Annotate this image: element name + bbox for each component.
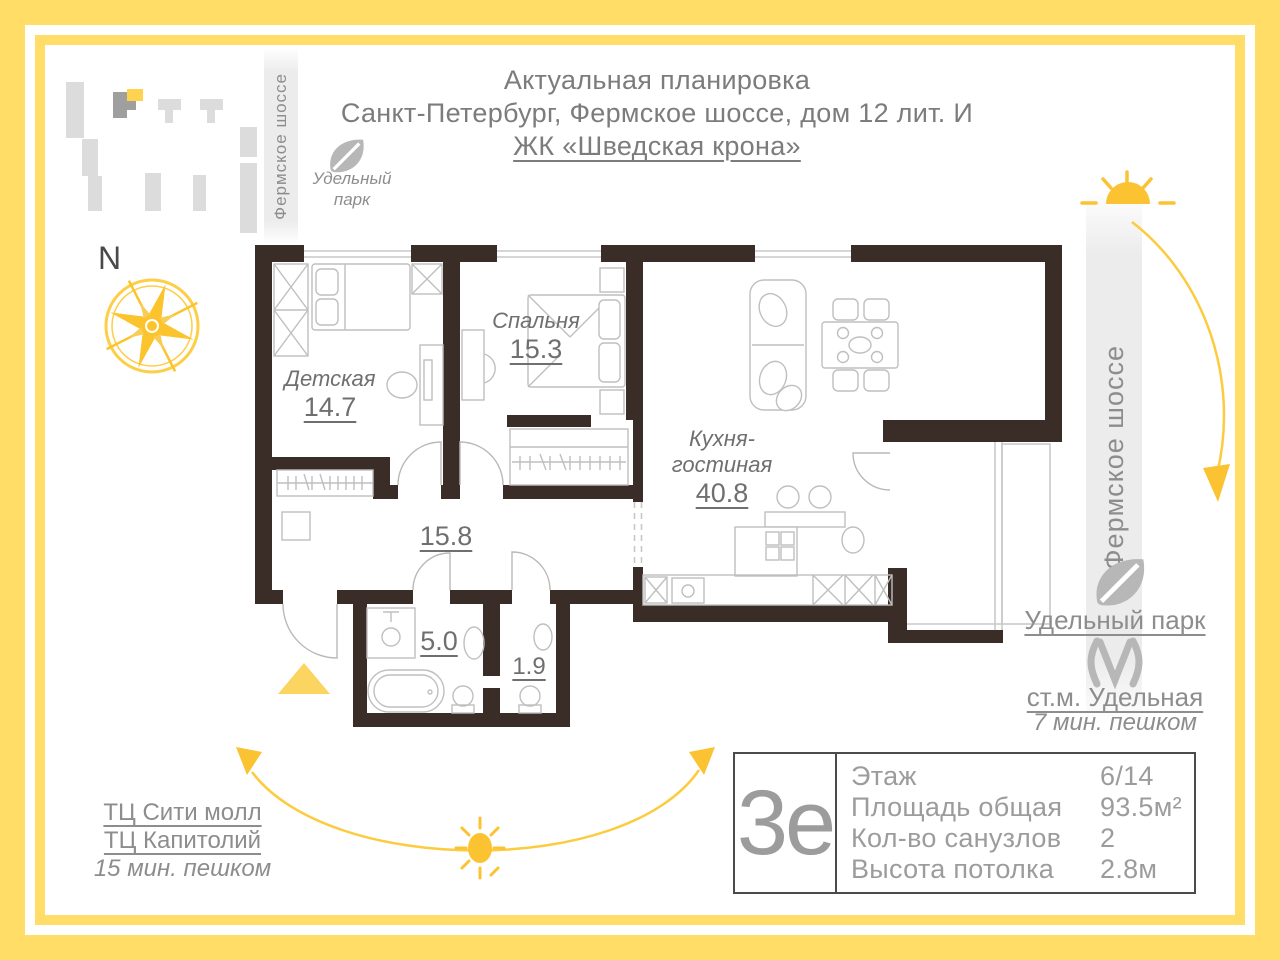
info-value: 2.8м [1100,854,1186,885]
room-name-detskaya: Детская [270,366,390,392]
park-link: Удельный парк [1024,605,1205,635]
site-buildings [66,82,257,233]
park-label-top: Удельный парк [300,168,404,210]
site-building-highlighted [113,89,143,118]
info-label: Площадь общая [851,792,1100,823]
info-value: 2 [1100,823,1186,854]
room-name-spalnya: Спальня [476,308,596,334]
room-area-hall: 15.8 [420,521,473,551]
title-complex-name: ЖК «Шведская крона» [513,130,801,165]
plan-code: 3е [735,754,837,892]
info-row-floor: Этаж 6/14 [851,761,1186,792]
sun-path-south-arrow-right-icon [689,747,715,775]
sun-path-east [1132,222,1224,474]
flyer: Фермское шоссе Фермское шоссе [0,0,1280,960]
room-area-spalnya: 15.3 [510,334,563,364]
title-line2: Санкт-Петербург, Фермское шоссе, дом 12 … [287,97,1027,130]
compass-icon [97,271,208,382]
info-card-rows: Этаж 6/14 Площадь общая 93.5м² Кол-во са… [837,754,1194,892]
room-area-bath: 5.0 [420,626,458,656]
leaf-icon [1096,559,1144,605]
entrance-arrow-icon [278,663,330,694]
mall-walk-time: 15 мин. пешком [85,855,280,883]
info-value: 93.5м² [1100,792,1186,823]
room-area-kitchen: 40.8 [696,478,749,508]
metro-walk-time: 7 мин. пешком [1005,709,1225,737]
info-row-bathrooms: Кол-во санузлов 2 [851,823,1186,854]
info-label: Высота потолка [851,854,1100,885]
info-row-ceiling: Высота потолка 2.8м [851,854,1186,885]
room-area-wc: 1.9 [512,653,545,680]
sun-south-icon [456,818,504,878]
info-label: Этаж [851,761,1100,792]
mall-link-1: ТЦ Сити молл [103,799,261,826]
room-area-detskaya: 14.7 [304,392,357,422]
info-value: 6/14 [1100,761,1186,792]
metro-logo-icon [1091,641,1139,684]
info-label: Кол-во санузлов [851,823,1100,854]
info-card: 3е Этаж 6/14 Площадь общая 93.5м² Кол-во… [733,752,1196,894]
north-label: N [98,240,121,277]
metro-link: ст.м. Удельная [1027,682,1203,712]
sun-path-south-arrow-left-icon [236,747,262,775]
sun-path-east-arrow-icon [1203,464,1230,502]
mall-link-2: ТЦ Капитолий [104,827,261,854]
info-row-area: Площадь общая 93.5м² [851,792,1186,823]
sun-east-icon [1082,172,1174,204]
title-block: Актуальная планировка Санкт-Петербург, Ф… [287,64,1027,165]
room-name-kitchen: Кухня-гостиная [660,426,784,478]
title-line1: Актуальная планировка [287,64,1027,97]
